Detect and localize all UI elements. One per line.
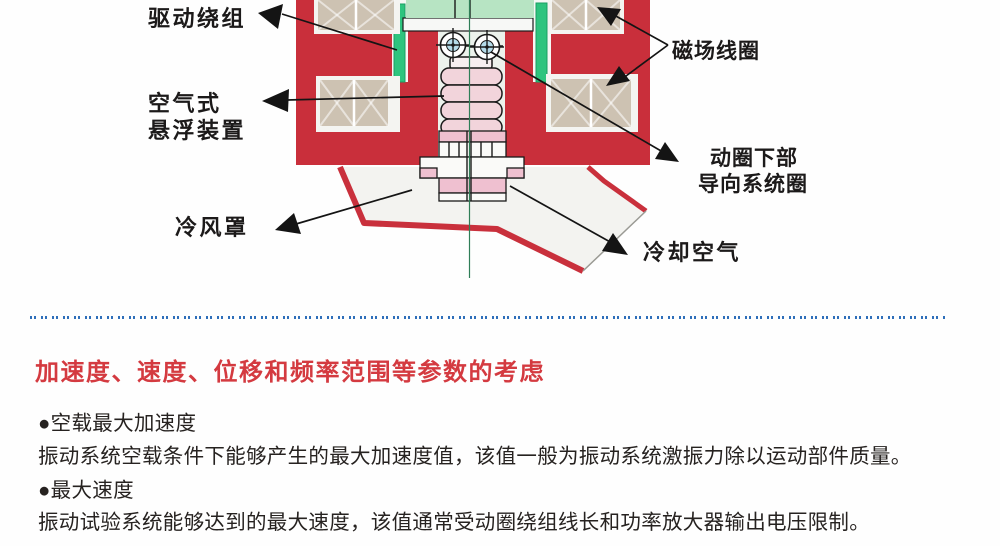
- label-field-coil: 磁场线圈: [672, 39, 760, 63]
- label-air-suspension-line2: 悬浮装置: [148, 118, 246, 143]
- paragraph-max-velocity: 振动试验系统能够达到的最大速度，该值通常受动圈绕组线长和功率放大器输出电压限制。: [38, 505, 870, 535]
- armature-bar: [403, 18, 533, 31]
- label-guide-line2: 导向系统圈: [698, 172, 808, 196]
- paragraph-no-load-max-acceleration: 振动系统空载条件下能够产生的最大加速度值，该值一般为振动系统激振力除以运动部件质…: [38, 439, 912, 469]
- label-cooling-air: 冷却空气: [643, 240, 741, 265]
- section-heading: 加速度、速度、位移和频率范围等参数的考虑: [35, 352, 545, 387]
- label-cooling-shroud: 冷风罩: [175, 215, 249, 240]
- dotted-divider: [30, 316, 946, 319]
- document-page: 驱动绕组 空气式 悬浮装置 冷风罩 磁场线圈 动圈下部 导向系统圈 冷却空气 加…: [0, 0, 1000, 546]
- arrowhead-cooling-shroud: [275, 213, 301, 234]
- label-guide-line1: 动圈下部: [710, 146, 798, 170]
- label-air-suspension-line1: 空气式: [148, 91, 222, 116]
- label-drive-winding: 驱动绕组: [148, 6, 246, 31]
- arrowhead-drive-winding: [258, 4, 283, 29]
- coil-block-bottom-left: [316, 76, 400, 132]
- coil-block-bottom-right: [546, 74, 638, 132]
- shaker-cross-section-diagram: 驱动绕组 空气式 悬浮装置 冷风罩 磁场线圈 动圈下部 导向系统圈 冷却空气: [0, 0, 1000, 300]
- air-suspension-bellows: [441, 57, 502, 135]
- bullet-no-load-max-acceleration: ●空载最大加速度: [38, 406, 196, 436]
- arrowhead-guide-system: [655, 142, 679, 162]
- bullet-max-velocity: ●最大速度: [38, 473, 134, 503]
- arrowhead-air-suspension: [262, 89, 289, 112]
